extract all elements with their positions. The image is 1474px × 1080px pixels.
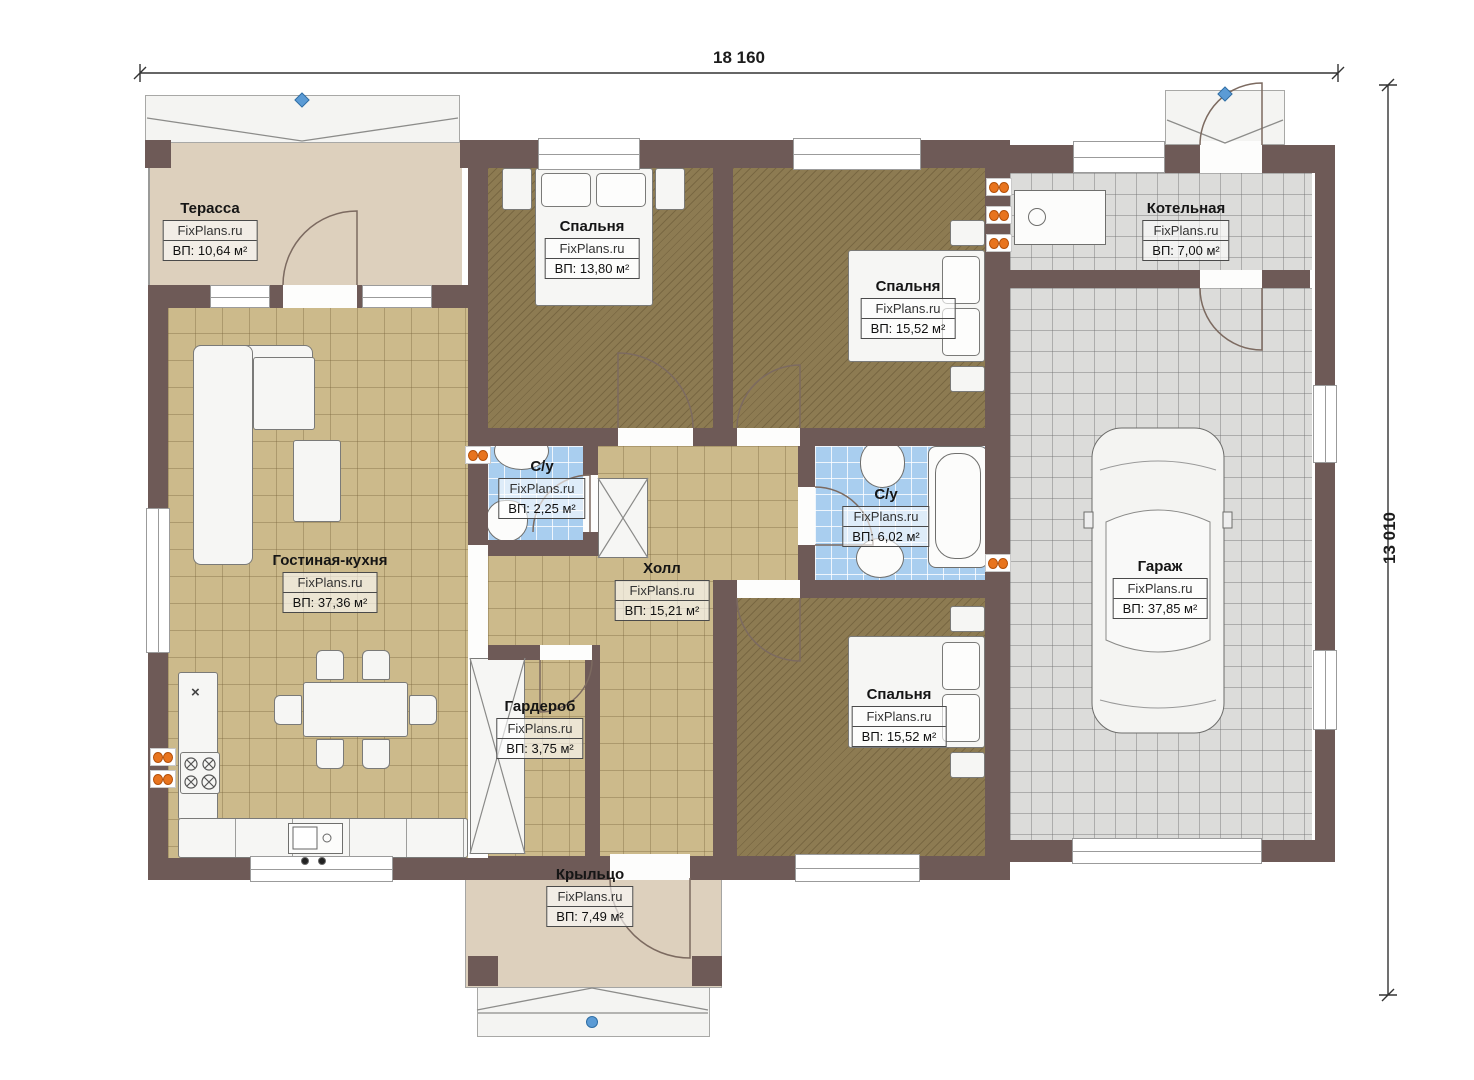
wall (468, 140, 488, 545)
wall (1315, 145, 1335, 862)
pillow (541, 173, 591, 207)
watermark: FixPlans.ru (862, 299, 955, 319)
chair (316, 650, 344, 680)
watermark: FixPlans.ru (843, 507, 928, 527)
radiator-marker (150, 748, 176, 766)
kitchen-sink (288, 823, 343, 854)
pillow (942, 694, 980, 742)
watermark: FixPlans.ru (164, 221, 257, 241)
door-opening (283, 285, 357, 308)
dimension-width-label: 18 160 (140, 48, 1338, 68)
door-opening (1200, 141, 1262, 173)
wall (1010, 270, 1200, 288)
room-name: Холл (615, 560, 710, 577)
room-area: ВП: 7,49 м² (547, 907, 632, 926)
entry-canopy (1165, 90, 1285, 145)
radiator-marker (465, 446, 491, 464)
chair (274, 695, 302, 725)
radiator-marker (986, 206, 1012, 224)
watermark: FixPlans.ru (616, 581, 709, 601)
wall (693, 428, 737, 446)
room-label-wardrobe: Гардероб FixPlans.ru ВП: 3,75 м² (496, 698, 583, 759)
stove (180, 752, 220, 794)
chair (362, 650, 390, 680)
floor-plan: 18 160 13 010 (0, 0, 1474, 1080)
window (1313, 385, 1337, 463)
chair (409, 695, 437, 725)
window (795, 854, 920, 882)
window (793, 138, 921, 170)
wall (488, 540, 598, 556)
watermark: FixPlans.ru (284, 573, 377, 593)
wall (585, 645, 600, 856)
door-opening (1200, 270, 1262, 288)
room-label-living: Гостиная-кухня FixPlans.ru ВП: 37,36 м² (273, 552, 388, 613)
dimension-height-label: 13 010 (1380, 478, 1400, 598)
watermark: FixPlans.ru (547, 887, 632, 907)
room-name: Спальня (861, 278, 956, 295)
window (210, 285, 270, 308)
sofa-seat (193, 345, 253, 565)
wall (145, 140, 171, 168)
wall (488, 645, 540, 660)
nightstand (502, 168, 532, 210)
dining-table (303, 682, 408, 737)
room-label-garage: Гараж FixPlans.ru ВП: 37,85 м² (1113, 558, 1208, 619)
room-area: ВП: 7,00 м² (1143, 241, 1228, 260)
watermark: FixPlans.ru (497, 719, 582, 739)
porch-steps (477, 985, 710, 1037)
room-label-bath2: С/у FixPlans.ru ВП: 6,02 м² (842, 486, 929, 547)
room-name: Крыльцо (546, 866, 633, 883)
watermark: FixPlans.ru (1114, 579, 1207, 599)
garage-gate (1072, 838, 1262, 864)
door-opening (618, 428, 693, 446)
room-area: ВП: 37,36 м² (284, 593, 377, 612)
nightstand (950, 752, 985, 778)
radiator-marker (150, 770, 176, 788)
door-opening (737, 580, 800, 598)
porch-column-right (692, 956, 722, 986)
room-area: ВП: 10,64 м² (164, 241, 257, 260)
room-area: ВП: 6,02 м² (843, 527, 928, 546)
coffee-table (293, 440, 341, 522)
wall (713, 140, 733, 428)
radiator-marker (986, 178, 1012, 196)
room-label-bedroom3: Спальня FixPlans.ru ВП: 15,52 м² (852, 686, 947, 747)
kitchen-x-symbol: × (191, 684, 200, 701)
room-area: ВП: 15,52 м² (862, 319, 955, 338)
room-name: Гостиная-кухня (273, 552, 388, 569)
tv-stand (253, 357, 315, 430)
window (1313, 650, 1337, 730)
room-name: Спальня (852, 686, 947, 703)
radiator-marker (985, 554, 1011, 572)
chair (316, 739, 344, 769)
room-label-porch: Крыльцо FixPlans.ru ВП: 7,49 м² (546, 866, 633, 927)
room-area: ВП: 2,25 м² (499, 499, 584, 518)
pillow (596, 173, 646, 207)
wall (800, 428, 1010, 446)
watermark: FixPlans.ru (499, 479, 584, 499)
room-name: Котельная (1142, 200, 1229, 217)
nightstand (655, 168, 685, 210)
window (146, 508, 170, 653)
door-opening (798, 487, 815, 545)
radiator-marker (986, 234, 1012, 252)
room-name: С/у (842, 486, 929, 503)
room-name: Терасса (163, 200, 258, 217)
room-area: ВП: 15,52 м² (853, 727, 946, 746)
room-label-bedroom1: Спальня FixPlans.ru ВП: 13,80 м² (545, 218, 640, 279)
terrace-canopy (145, 95, 460, 143)
room-label-hall: Холл FixPlans.ru ВП: 15,21 м² (615, 560, 710, 621)
door-opening (737, 428, 800, 446)
room-name: Спальня (545, 218, 640, 235)
room-name: С/у (498, 458, 585, 475)
wall (800, 580, 1010, 598)
room-area: ВП: 15,21 м² (616, 601, 709, 620)
room-label-boiler: Котельная FixPlans.ru ВП: 7,00 м² (1142, 200, 1229, 261)
door-opening (540, 645, 592, 660)
wall (798, 446, 815, 487)
passage-opening (468, 545, 488, 658)
wall (713, 580, 737, 856)
bathtub-inner (935, 453, 981, 559)
room-area: ВП: 37,85 м² (1114, 599, 1207, 618)
watermark: FixPlans.ru (853, 707, 946, 727)
room-area: ВП: 3,75 м² (497, 739, 582, 758)
toilet (860, 440, 905, 488)
pillow (942, 642, 980, 690)
hall-closet (598, 478, 648, 558)
wall (488, 428, 618, 446)
wall (1262, 270, 1310, 288)
watermark: FixPlans.ru (1143, 221, 1228, 241)
room-label-terrace: Терасса FixPlans.ru ВП: 10,64 м² (163, 200, 258, 261)
window (538, 138, 640, 170)
wall (798, 545, 815, 580)
window (250, 856, 393, 882)
nightstand (950, 366, 985, 392)
room-label-bath1: С/у FixPlans.ru ВП: 2,25 м² (498, 458, 585, 519)
room-name: Гараж (1113, 558, 1208, 575)
porch-column-left (468, 956, 498, 986)
room-area: ВП: 13,80 м² (546, 259, 639, 278)
wall (1010, 145, 1335, 173)
watermark: FixPlans.ru (546, 239, 639, 259)
window (1073, 141, 1165, 173)
boiler-dial (1028, 208, 1046, 226)
room-name: Гардероб (496, 698, 583, 715)
nightstand (950, 220, 985, 246)
room-label-bedroom2: Спальня FixPlans.ru ВП: 15,52 м² (861, 278, 956, 339)
window (362, 285, 432, 308)
chair (362, 739, 390, 769)
nightstand (950, 606, 985, 632)
